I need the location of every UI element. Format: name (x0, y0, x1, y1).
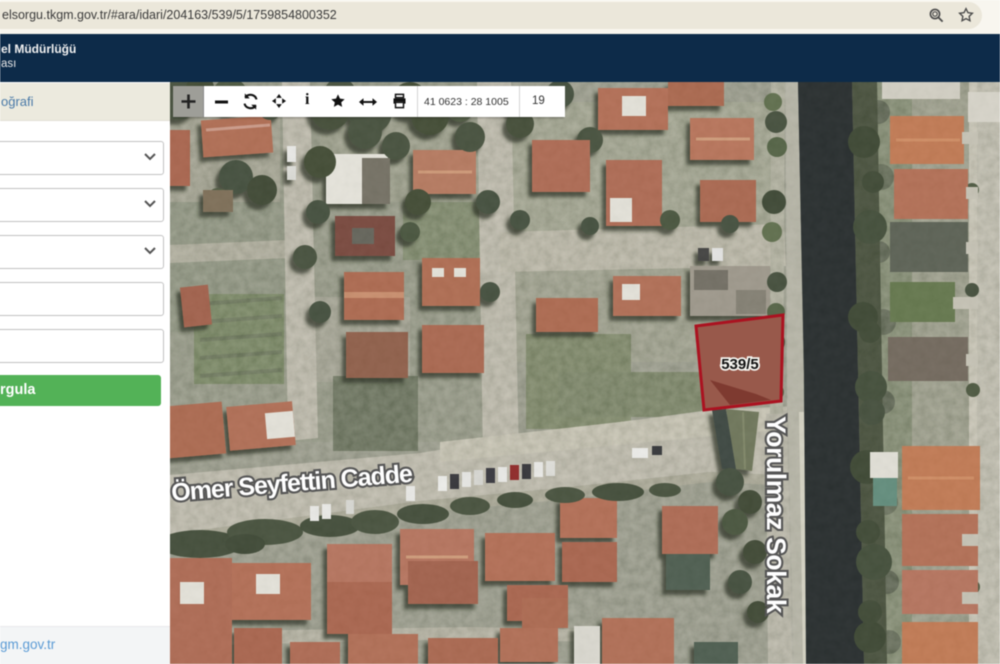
svg-text:Yorulmaz Sokak: Yorulmaz Sokak (761, 416, 791, 614)
svg-text:539/5: 539/5 (721, 356, 759, 373)
